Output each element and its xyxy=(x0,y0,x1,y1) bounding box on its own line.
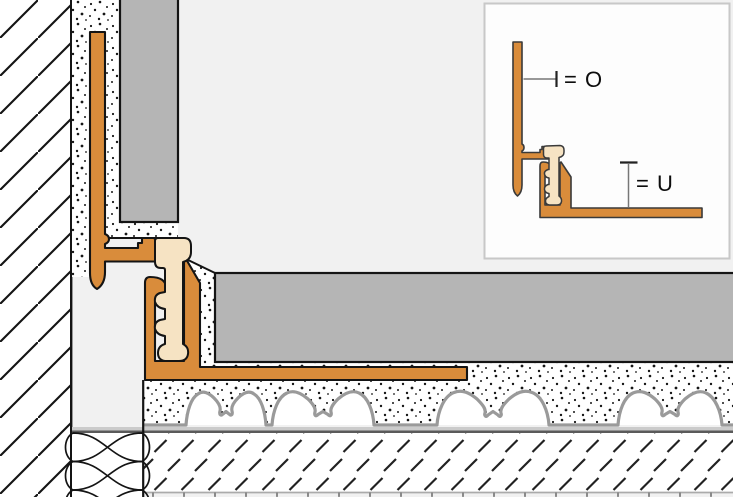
profile-installation-drawing: = O = U xyxy=(0,0,733,497)
cross-section-svg: = O = U xyxy=(0,0,733,497)
dimension-O-label: = O xyxy=(564,67,603,92)
wall-tile xyxy=(120,0,178,222)
legend-inset: = O = U xyxy=(485,4,730,259)
layer-separation-line xyxy=(72,431,733,434)
screed-hatch-pattern xyxy=(143,433,733,492)
screed-layer xyxy=(143,433,733,495)
dimension-U-label: = U xyxy=(636,171,674,196)
wall-hatch-pattern xyxy=(0,0,71,497)
masonry-wall xyxy=(0,0,71,497)
floor-tile xyxy=(215,273,733,362)
